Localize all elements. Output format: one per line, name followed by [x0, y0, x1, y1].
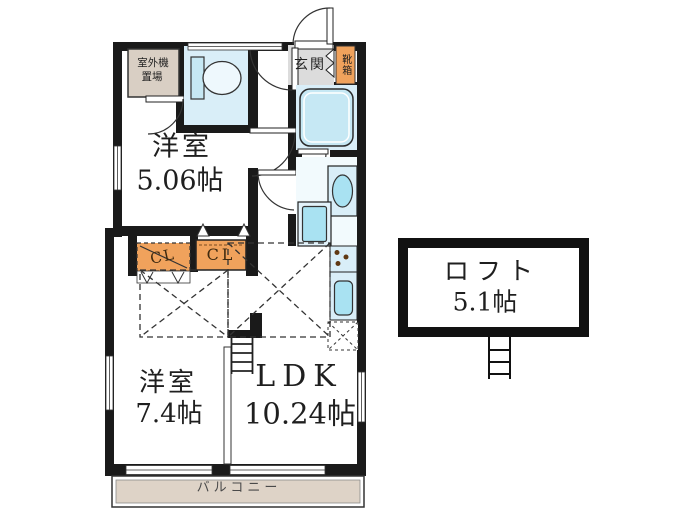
loft-name: ロフト — [444, 258, 540, 287]
loft-size: 5.1帖 — [453, 289, 518, 318]
kitchen-sink-icon — [335, 281, 353, 315]
ldk-size: 10.24帖 — [244, 397, 356, 430]
bathtub-icon — [300, 89, 353, 146]
kitchen — [328, 246, 358, 350]
western-room-2-size: 7.4帖 — [135, 400, 202, 430]
washbasin-icon — [333, 175, 353, 207]
balcony-label: バルコニー — [197, 482, 282, 497]
outdoor-unit-label-line1: 室外機 — [137, 57, 169, 69]
toilet-tank-icon — [191, 57, 204, 99]
room-partition — [224, 347, 231, 464]
entrance-label: 玄関 — [294, 57, 326, 73]
stove-burner-icon — [335, 250, 340, 255]
washroom — [296, 157, 357, 246]
washing-machine-icon — [303, 207, 327, 242]
toilet-bowl-icon — [203, 62, 241, 95]
ldk-name: LDK — [255, 360, 342, 395]
stove-burner-icon — [336, 261, 341, 266]
ldk-loft-ladder — [232, 337, 253, 374]
loft-ladder — [489, 337, 510, 379]
outdoor-unit-label-line2: 置場 — [142, 71, 163, 83]
front-door-leaf — [327, 8, 333, 44]
floorplan-canvas: 室外機 置場 玄関 靴箱 洋室 5.06帖 CL CL 洋室 7.4帖 LDK … — [0, 0, 700, 525]
floorplan-drawing — [0, 0, 700, 525]
closet-2-label: CL — [207, 246, 236, 264]
toilet-room — [184, 46, 248, 125]
western-room-1-size: 5.06帖 — [136, 165, 223, 196]
shoe-box-label: 靴箱 — [339, 54, 351, 76]
front-door-arc — [293, 8, 330, 44]
stove-burner-icon — [344, 255, 349, 260]
western-room-2-name: 洋室 — [139, 369, 197, 399]
western-room-1-name: 洋室 — [152, 131, 212, 162]
